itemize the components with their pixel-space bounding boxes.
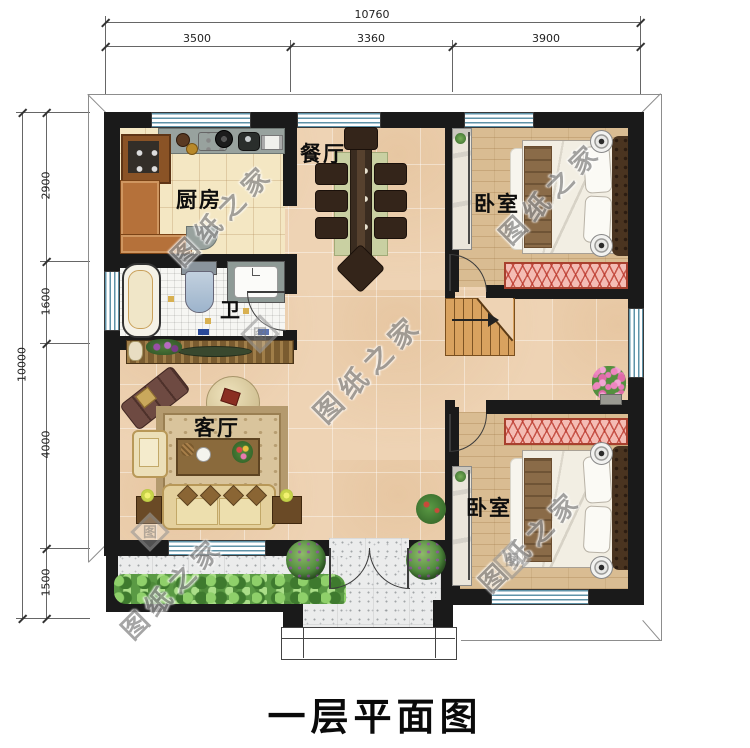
bedside-lamp bbox=[590, 556, 613, 579]
hall-flower-pot-base bbox=[600, 394, 622, 405]
dim-left-seg-4: 1500 bbox=[40, 561, 53, 605]
dining-chair-right-1 bbox=[374, 163, 407, 185]
dim-ext-line bbox=[16, 112, 90, 113]
dim-left-seg-1: 2900 bbox=[40, 164, 53, 208]
dim-left-total: 10000 bbox=[16, 343, 29, 387]
entrance-step-line bbox=[281, 638, 455, 639]
bed-pillow bbox=[583, 505, 612, 553]
dim-top-seg-2: 3360 bbox=[349, 32, 393, 45]
entrance-pillar-right bbox=[433, 600, 453, 628]
watermark-logo-glyph: 图 bbox=[143, 522, 157, 542]
living-plant bbox=[416, 494, 446, 524]
dining-chair-right-2 bbox=[374, 190, 407, 212]
toilet-bowl bbox=[185, 271, 214, 313]
bedroom-bottom-door-leaf bbox=[449, 414, 451, 451]
bedroom-bench bbox=[504, 262, 628, 289]
kitchen-window bbox=[152, 113, 250, 127]
eave-line-top bbox=[88, 94, 662, 95]
kitchen-cabinet-left bbox=[120, 180, 160, 242]
living-label: 客厅 bbox=[194, 412, 240, 442]
wardrobe-plant bbox=[455, 471, 466, 482]
dim-ext-line bbox=[16, 618, 90, 619]
bath-tile-accent bbox=[243, 308, 249, 314]
eave-diagonal bbox=[641, 93, 661, 113]
entrance-step-side bbox=[303, 627, 304, 658]
watermark-logo-glyph: 图 bbox=[253, 324, 267, 344]
bedroom-bottom-window bbox=[492, 590, 588, 604]
sink-faucet bbox=[245, 136, 251, 142]
bathroom-window bbox=[105, 272, 119, 330]
dim-top-seg-3: 3900 bbox=[524, 32, 568, 45]
eave-line-right bbox=[661, 94, 662, 641]
bath-tile-accent bbox=[205, 318, 211, 324]
eave-diagonal bbox=[87, 94, 107, 114]
dining-chair-top bbox=[344, 127, 378, 150]
wall-bedroom-bottom-top-a bbox=[445, 400, 455, 414]
eave-diagonal bbox=[642, 620, 660, 641]
bedside-lamp bbox=[590, 234, 613, 257]
entrance-bush-left bbox=[286, 540, 326, 580]
wardrobe-handle bbox=[468, 470, 470, 580]
kitchen-label: 厨房 bbox=[176, 184, 222, 214]
bath-tile-accent bbox=[168, 296, 174, 302]
pot-icon bbox=[186, 143, 198, 155]
bed-headboard bbox=[612, 136, 628, 256]
wall-exterior-left bbox=[104, 112, 120, 556]
table-flowers bbox=[232, 441, 253, 463]
wall-bath-right-upper bbox=[283, 268, 297, 294]
entrance-steps bbox=[281, 627, 457, 660]
dim-top-seg-1: 3500 bbox=[175, 32, 219, 45]
bedroom-top-label: 卧室 bbox=[474, 188, 520, 218]
armchair-cushion bbox=[139, 438, 159, 467]
dim-line-top-total bbox=[105, 22, 641, 23]
entrance-step-side bbox=[435, 627, 436, 658]
bedroom-bottom-label: 卧室 bbox=[466, 492, 512, 522]
hall-window bbox=[629, 309, 643, 377]
bedroom-top-window bbox=[465, 113, 533, 127]
stove-burners bbox=[128, 141, 159, 173]
table-lamp bbox=[141, 489, 154, 502]
entrance-pillar-left bbox=[283, 600, 303, 628]
dim-ext-line bbox=[640, 16, 641, 94]
entrance-door-right-leaf bbox=[407, 548, 409, 588]
wardrobe-plant bbox=[455, 133, 466, 144]
table-lamp bbox=[280, 489, 293, 502]
dim-left-seg-3: 4000 bbox=[40, 423, 53, 467]
console-tray bbox=[178, 346, 252, 357]
dining-label: 餐厅 bbox=[300, 138, 346, 168]
entrance-door-left-leaf bbox=[329, 548, 331, 588]
bath-tile-accent bbox=[198, 329, 209, 335]
dim-left-seg-2: 1600 bbox=[40, 280, 53, 324]
eave-line-left bbox=[88, 94, 89, 562]
console-statue bbox=[128, 341, 143, 361]
wardrobe-handle bbox=[468, 132, 470, 244]
eave-line-bottom bbox=[461, 640, 662, 641]
entrance-bush-right bbox=[406, 540, 446, 580]
bedroom-bench bbox=[504, 418, 628, 445]
page-title: 一层平面图 bbox=[0, 686, 750, 741]
dining-chair-left-2 bbox=[315, 190, 348, 212]
bathroom-door-leaf bbox=[247, 291, 285, 293]
dining-chair-right-3 bbox=[374, 217, 407, 239]
wok-icon bbox=[215, 130, 233, 148]
dining-chair-left-3 bbox=[315, 217, 348, 239]
dim-ext-line bbox=[105, 16, 106, 94]
stair-arrow-line bbox=[452, 319, 490, 321]
console-flowers bbox=[146, 339, 182, 355]
watermark-logo-glyph: 图 bbox=[505, 550, 519, 570]
bathroom-label: 卫 bbox=[220, 294, 242, 323]
floor-plan: 10760 3500 3360 3900 10000 2900 1600 400… bbox=[0, 0, 750, 748]
table-plate bbox=[196, 447, 211, 462]
bathtub-basin bbox=[128, 270, 153, 329]
vanity-faucet bbox=[252, 268, 260, 276]
stair-arrow-head bbox=[488, 313, 499, 327]
dim-line-top-segments bbox=[105, 46, 641, 47]
table-basket bbox=[181, 443, 194, 456]
dining-window bbox=[298, 113, 380, 127]
dim-top-total: 10760 bbox=[337, 8, 407, 21]
bed-headboard bbox=[612, 446, 628, 570]
